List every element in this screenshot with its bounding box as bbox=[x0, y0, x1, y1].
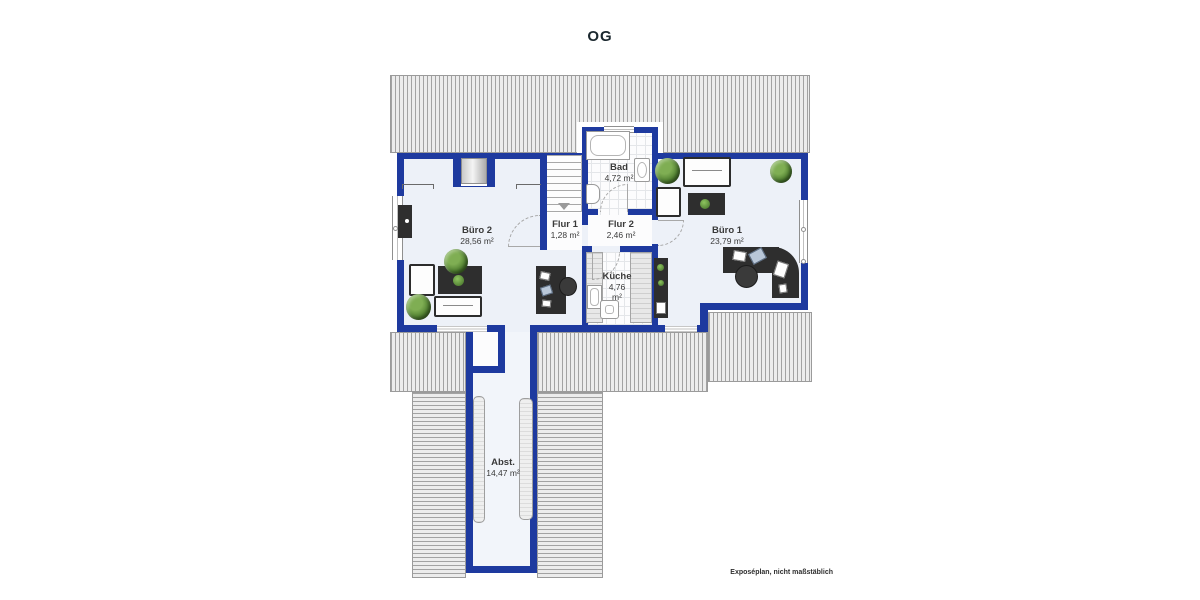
room-label-abst: Abst. 14,47 m² bbox=[463, 457, 543, 478]
office-chair bbox=[559, 277, 577, 296]
toilet bbox=[586, 184, 600, 204]
table-plant bbox=[453, 275, 464, 286]
room-area: 4,72 m² bbox=[587, 173, 651, 183]
wall-segment bbox=[487, 325, 505, 332]
room-name: Flur 2 bbox=[583, 219, 659, 230]
office-chair bbox=[735, 265, 758, 288]
stair-direction-arrow-icon bbox=[558, 203, 570, 210]
desk-papers bbox=[778, 283, 787, 293]
roof-hatch-wing-left bbox=[412, 392, 466, 578]
wall-segment bbox=[530, 325, 582, 332]
room-area-unit: m² bbox=[585, 292, 649, 302]
room-area: 14,47 m² bbox=[463, 468, 543, 478]
roof-hatch-bottom-middle bbox=[537, 332, 708, 392]
roof-hatch-bottom-left bbox=[390, 332, 466, 392]
room-area: 4,76 bbox=[585, 282, 649, 292]
wall-segment bbox=[466, 366, 505, 373]
room-name: Küche bbox=[585, 271, 649, 282]
wall-segment bbox=[466, 566, 537, 573]
wall-segment bbox=[397, 153, 455, 159]
potted-plant bbox=[406, 294, 431, 320]
room-label-kueche: Küche 4,76 m² bbox=[585, 271, 649, 302]
door-leaf bbox=[627, 184, 628, 212]
dishwasher bbox=[600, 300, 619, 319]
wall-segment bbox=[397, 260, 404, 332]
room-name: Büro 2 bbox=[427, 225, 527, 236]
room-name: Abst. bbox=[463, 457, 543, 468]
shelf-plant bbox=[658, 280, 664, 286]
wall-segment bbox=[397, 325, 437, 332]
roof-hatch-wing-right bbox=[537, 392, 603, 578]
wall-segment bbox=[397, 153, 404, 196]
window-handle bbox=[801, 259, 806, 264]
wall-segment bbox=[582, 325, 658, 332]
desk-papers bbox=[542, 300, 552, 308]
chimney-opening bbox=[461, 184, 487, 186]
tv-dot bbox=[405, 219, 409, 223]
potted-plant bbox=[770, 160, 792, 183]
door-leaf bbox=[508, 246, 540, 247]
room-area: 28,56 m² bbox=[427, 236, 527, 246]
potted-plant bbox=[655, 158, 680, 184]
window bbox=[665, 326, 697, 332]
floor-pocket-void bbox=[473, 332, 498, 366]
wall-segment bbox=[697, 325, 708, 332]
roof-hatch-bottom-right bbox=[708, 312, 812, 382]
room-name: Bad bbox=[587, 162, 651, 173]
sofa bbox=[683, 157, 731, 187]
room-label-buero2: Büro 2 28,56 m² bbox=[427, 225, 527, 246]
floor-plan: OG bbox=[0, 0, 1200, 600]
window-handle bbox=[801, 227, 806, 232]
disclaimer-note: Exposéplan, nicht maßstäblich bbox=[633, 569, 833, 576]
room-area: 23,79 m² bbox=[677, 236, 777, 246]
room-area: 2,46 m² bbox=[583, 230, 659, 240]
room-label-bad: Bad 4,72 m² bbox=[587, 162, 651, 183]
room-label-flur2: Flur 2 2,46 m² bbox=[583, 219, 659, 240]
wall-segment bbox=[658, 153, 808, 159]
door-leaf bbox=[658, 220, 684, 221]
printer bbox=[656, 302, 666, 314]
potted-plant bbox=[444, 249, 468, 274]
table-plant bbox=[700, 199, 710, 209]
window bbox=[437, 326, 487, 332]
wall-segment bbox=[801, 153, 808, 200]
room-label-buero1: Büro 1 23,79 m² bbox=[677, 225, 777, 246]
armchair bbox=[409, 264, 435, 296]
armchair bbox=[656, 187, 681, 217]
chimney-flue bbox=[461, 158, 487, 184]
plan-title: OG bbox=[0, 28, 1200, 45]
sofa bbox=[434, 296, 482, 317]
shelf-plant bbox=[657, 264, 664, 271]
wall-segment bbox=[708, 303, 808, 310]
bathtub bbox=[586, 131, 630, 160]
room-name: Büro 1 bbox=[677, 225, 777, 236]
desk-papers bbox=[732, 250, 747, 262]
